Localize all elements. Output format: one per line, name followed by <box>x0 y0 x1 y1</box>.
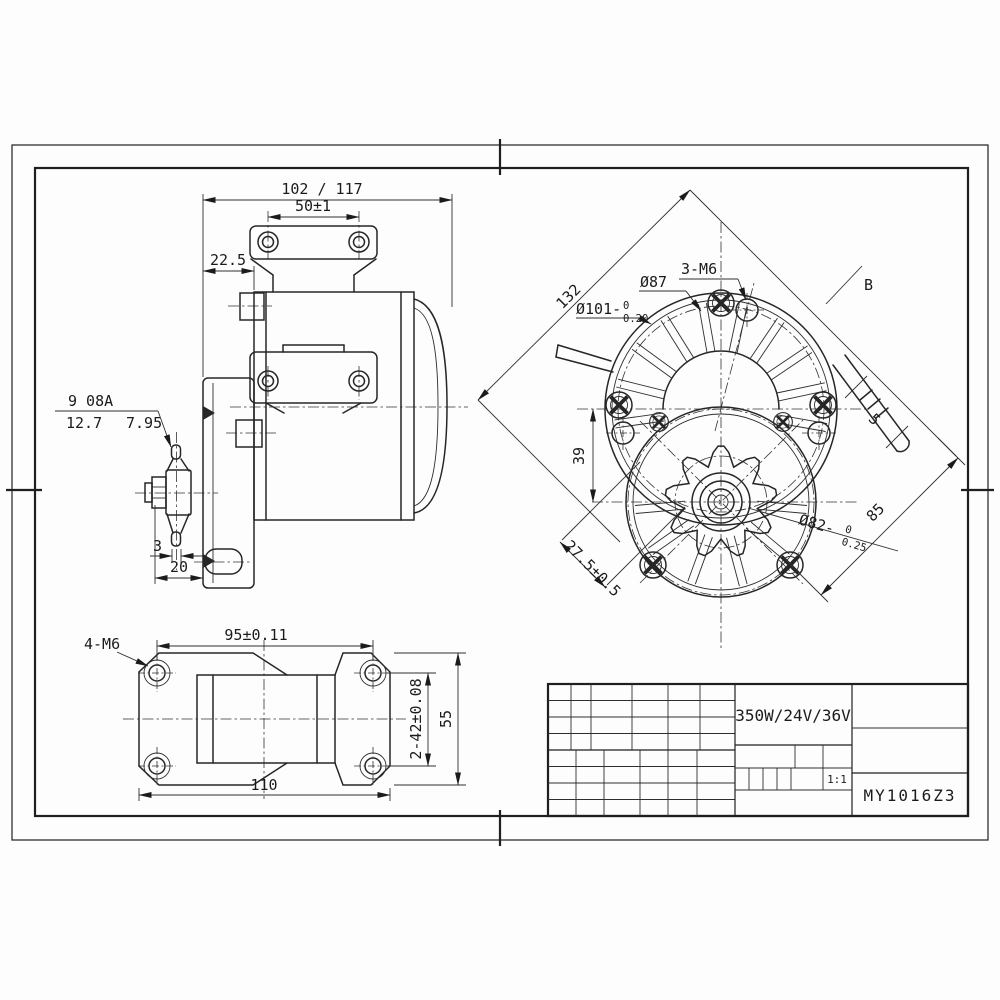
dim-screw-offset: 27.5±0.5 <box>561 537 625 601</box>
end-view: 132 Ø101- 0 0.20 Ø87 3-M6 B 39 27.5±0.5 … <box>478 190 965 648</box>
dim-face-offset: 22.5 <box>210 251 246 269</box>
title-block-grid-upper <box>548 684 735 750</box>
gearbox-plate <box>203 378 254 588</box>
dim-spigot-lower-tol: 0.20 <box>623 313 648 325</box>
thread-note-3m6: 3-M6 <box>681 260 717 278</box>
sprocket-chain-note: 9 08A <box>68 392 113 410</box>
drawing-border <box>6 139 994 846</box>
title-block-grid-lower <box>548 750 735 816</box>
sprocket-pitch: 12.7 <box>66 414 102 432</box>
brush-cap-lower <box>236 420 262 447</box>
dim-hub-width: 20 <box>170 558 188 576</box>
drawing-canvas: 102 / 117 50±1 22.5 3 20 9 08A 12.7 7.95 <box>0 0 1000 1000</box>
motor-spec: 350W/24V/36V <box>735 706 851 725</box>
dim-pilot-upper-tol: 0 <box>844 523 853 536</box>
drawing-scale: 1:1 <box>827 773 847 786</box>
shaft-nut <box>152 477 166 508</box>
side-view-centerlines <box>135 211 468 570</box>
brush-cap-upper <box>240 293 264 320</box>
bottom-view: 4-M6 95±0.11 110 2-42±0.08 55 <box>84 626 466 801</box>
dim-hole-span-y: 2-42±0.08 <box>407 678 425 759</box>
dim-overall-width: 110 <box>250 776 277 794</box>
sprocket-hub <box>166 470 191 515</box>
dim-axis-offset: 39 <box>570 447 588 465</box>
sprocket-roller: 7.95 <box>126 414 162 432</box>
engineering-drawing-sheet: 102 / 117 50±1 22.5 3 20 9 08A 12.7 7.95 <box>0 0 1000 1000</box>
sprocket-side-outline <box>145 445 191 546</box>
bottom-view-dimensions: 4-M6 95±0.11 110 2-42±0.08 55 <box>84 626 466 801</box>
dim-hole-span-x: 95±0.11 <box>224 626 287 644</box>
model-number: MY1016Z3 <box>863 786 956 805</box>
view-label-b: B <box>864 276 873 294</box>
title-block: 350W/24V/36V 1:1 MY1016Z3 <box>548 684 968 816</box>
dim-overall-depth: 55 <box>437 710 455 728</box>
dim-pilot-lower-tol: 0.25 <box>840 536 868 555</box>
dim-bolt-circle: Ø87 <box>640 273 667 291</box>
dim-spigot-diameter: Ø101- <box>576 300 621 318</box>
lower-bracket <box>250 352 377 403</box>
dim-plate-thickness: 3 <box>153 537 162 555</box>
dim-overall-length: 102 / 117 <box>281 180 362 198</box>
dim-bracket-hole-spacing: 50±1 <box>295 197 331 215</box>
dim-diagonal-gear: 85 <box>863 500 889 526</box>
side-view: 102 / 117 50±1 22.5 3 20 9 08A 12.7 7.95 <box>55 180 468 588</box>
thread-note-4m6: 4-M6 <box>84 635 120 653</box>
motor-cable-right <box>833 355 909 452</box>
dim-spigot-upper-tol: 0 <box>623 300 629 312</box>
motor-wire-left <box>556 345 613 372</box>
